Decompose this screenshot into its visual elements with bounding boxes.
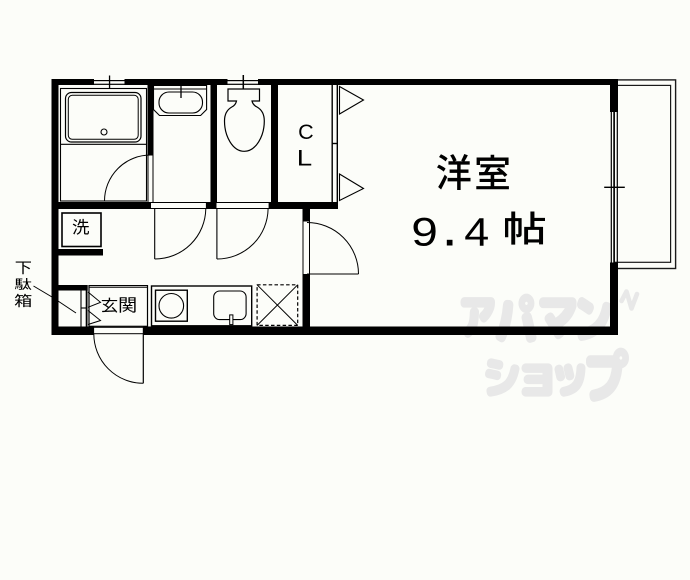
svg-text:C: C xyxy=(298,120,314,144)
svg-text:4: 4 xyxy=(464,210,489,255)
svg-text:L: L xyxy=(297,146,313,171)
svg-text:9: 9 xyxy=(411,210,438,255)
